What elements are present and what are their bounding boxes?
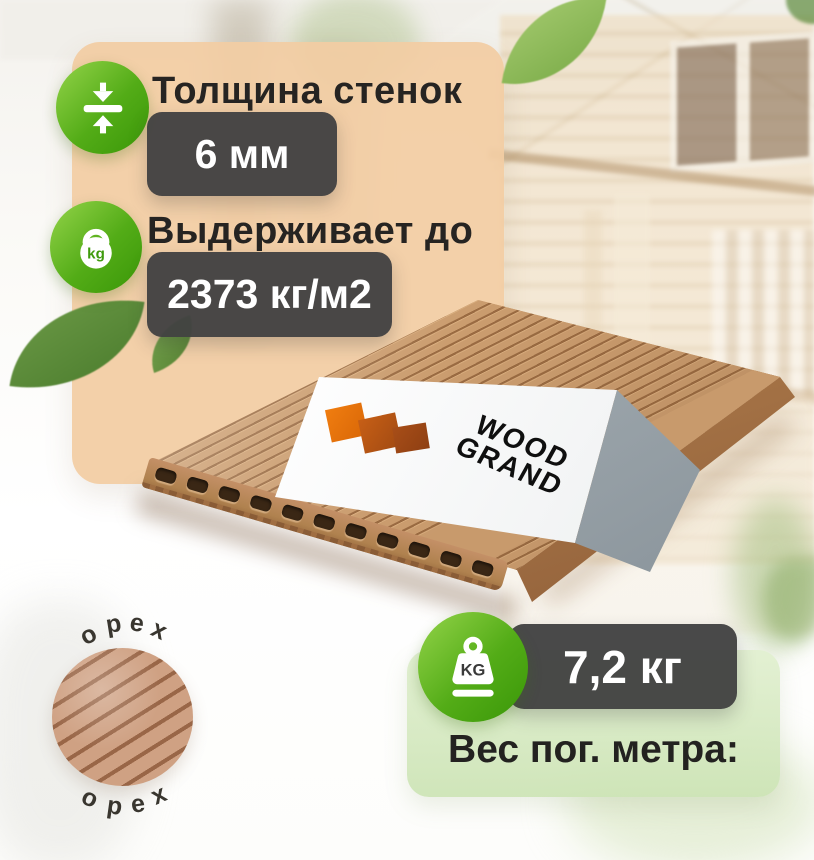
photo-roof-eave bbox=[489, 149, 814, 197]
svg-text:kg: kg bbox=[87, 246, 105, 263]
spec-load-label: Выдерживает до bbox=[147, 210, 473, 253]
weight-value: 7,2 кг bbox=[563, 640, 682, 694]
photo-house-window bbox=[670, 31, 814, 173]
weight-value-badge: 7,2 кг bbox=[508, 624, 737, 709]
kettlebell-kg-icon: kg bbox=[68, 219, 124, 275]
leaf-icon bbox=[786, 0, 814, 24]
weight-caption: Вес пог. метра: bbox=[427, 728, 760, 772]
svg-text:KG: KG bbox=[461, 661, 486, 679]
product-infographic: Толщина стенок 6 мм kg Выдерживает до 23… bbox=[0, 0, 814, 860]
thickness-arrows-icon bbox=[74, 79, 132, 137]
kettlebell-icon: kg bbox=[50, 201, 142, 293]
brand-logo-mark bbox=[392, 423, 430, 454]
spec-thickness-label: Толщина стенок bbox=[152, 70, 462, 113]
color-swatch: орех орех bbox=[40, 600, 265, 840]
spec-thickness-value: 6 мм bbox=[195, 131, 290, 178]
photo-roof-right-slope bbox=[613, 0, 814, 143]
leaf-icon bbox=[502, 0, 607, 96]
weight-kg-icon: KG bbox=[418, 612, 528, 722]
spec-thickness-value-badge: 6 мм bbox=[147, 112, 337, 196]
swatch-name-bottom: орех bbox=[40, 600, 265, 840]
decking-board-image: WOOD GRAND bbox=[140, 290, 814, 635]
thickness-icon bbox=[56, 61, 149, 154]
weight-icon: KG bbox=[440, 634, 506, 700]
